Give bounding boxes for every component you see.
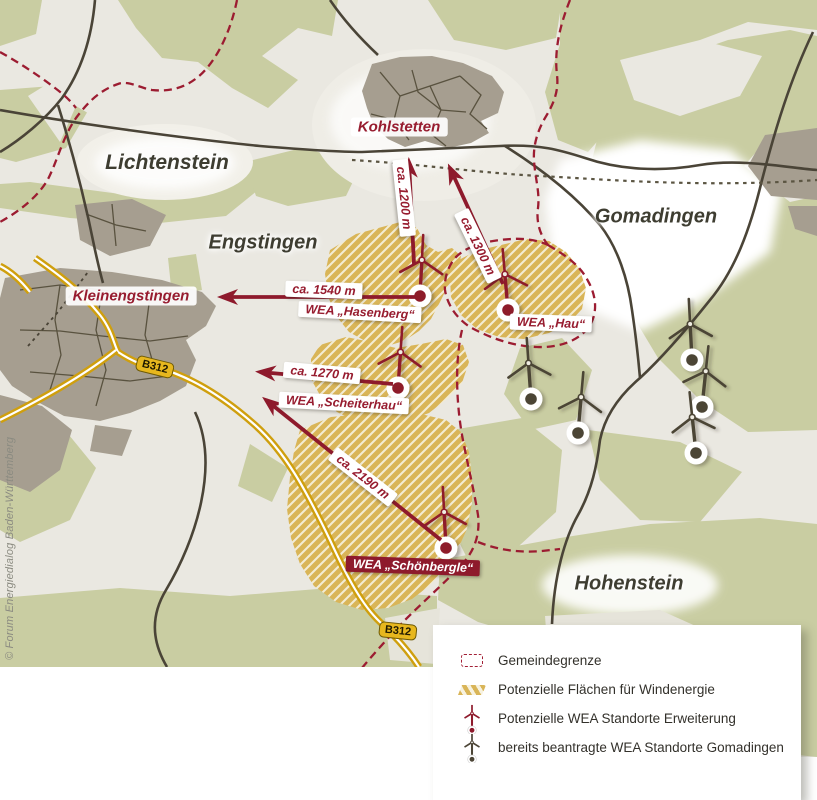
legend-label: Gemeindegrenze [498,653,602,668]
label-gomadingen: Gomadingen [595,206,717,229]
map-page: Lichtenstein Engstingen Gomadingen Hohen… [0,0,817,800]
label-wea-hau: WEA „Hau“ [510,314,593,333]
legend-box: Gemeindegrenze Potenzielle Flächen für W… [433,625,801,800]
page-cutoff-left [0,667,434,800]
legend-item-wea-beantragt: bereits beantragte WEA Standorte Gomadin… [455,733,801,762]
label-kohlstetten: Kohlstetten [351,118,448,137]
hatched-area-icon [458,685,486,695]
label-kleinengstingen: Kleinengstingen [66,287,197,306]
label-hohenstein: Hohenstein [575,573,684,596]
label-lichtenstein: Lichtenstein [105,151,229,175]
label-engstingen: Engstingen [209,232,318,255]
turbine-red-icon [455,704,489,734]
turbine-gray-icon [455,733,489,763]
label-distance-1540: ca. 1540 m [285,281,363,300]
legend-label: Potenzielle WEA Standorte Erweiterung [498,711,736,726]
legend-label: Potenzielle Flächen für Windenergie [498,682,715,697]
legend-label: bereits beantragte WEA Standorte Gomadin… [498,740,784,755]
copyright-text: © Forum Energiedialog Baden-Württemberg [4,380,16,660]
boundary-dashed-icon [461,654,483,667]
legend-item-wea-potenziell: Potenzielle WEA Standorte Erweiterung [455,704,801,733]
legend-item-flaechen: Potenzielle Flächen für Windenergie [455,675,801,704]
legend-item-gemeindegrenze: Gemeindegrenze [455,646,801,675]
